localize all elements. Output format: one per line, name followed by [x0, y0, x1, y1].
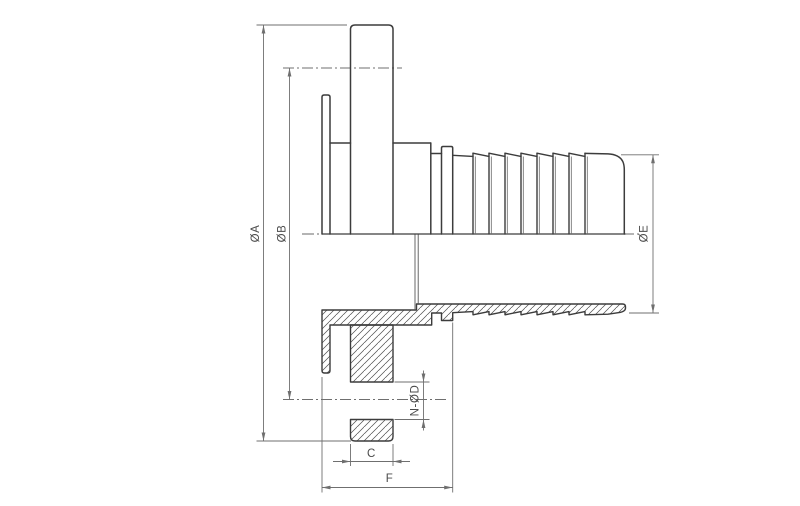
c-arrow-right [393, 460, 402, 464]
dimension-c: C [333, 444, 410, 466]
phi-a-arrow-bottom [262, 433, 266, 442]
hub-step [431, 143, 442, 234]
dimension-n-phi-d: N-ØD [395, 371, 430, 431]
phi-a-extension-lines [257, 25, 352, 441]
lap-ring-outline [322, 95, 330, 234]
dim-label-phi-a: ØA [250, 225, 262, 243]
flange-section-upper [351, 325, 394, 382]
dim-label-phi-b: ØB [277, 225, 289, 243]
dim-label-c: C [367, 448, 376, 460]
dimension-phi-b: ØB [277, 68, 292, 400]
f-arrow-right [444, 486, 453, 490]
barb-end-outline [585, 153, 624, 234]
part-upper-view [322, 25, 624, 234]
technical-drawing-canvas: ØA ØB ØE N-ØD C F [0, 0, 800, 506]
dim-label-n-phi-d: N-ØD [410, 385, 422, 417]
part-lower-section [322, 234, 626, 441]
dim-label-phi-e: ØE [639, 225, 651, 243]
phi-e-arrow-bottom [651, 305, 655, 314]
collar-outline [442, 147, 453, 235]
dimension-phi-a: ØA [250, 25, 351, 441]
dim-label-f: F [386, 473, 394, 485]
f-arrow-left [322, 486, 331, 490]
n-phi-d-arrow-top [422, 374, 426, 383]
flange-outline [351, 25, 394, 234]
flange-section-lower [351, 420, 394, 442]
barb-teeth-detail-verticals [475, 157, 587, 235]
phi-a-arrow-top [262, 25, 266, 34]
phi-b-arrow-top [288, 68, 292, 77]
bore-step-projection-lines [415, 235, 418, 311]
n-phi-d-arrow-bottom [422, 420, 426, 429]
barb-teeth-verticals [473, 153, 585, 234]
c-arrow-left [342, 460, 351, 464]
phi-e-arrow-top [651, 155, 655, 164]
drawing-page: ØA ØB ØE N-ØD C F [0, 0, 800, 506]
phi-b-arrow-bottom [288, 391, 292, 400]
